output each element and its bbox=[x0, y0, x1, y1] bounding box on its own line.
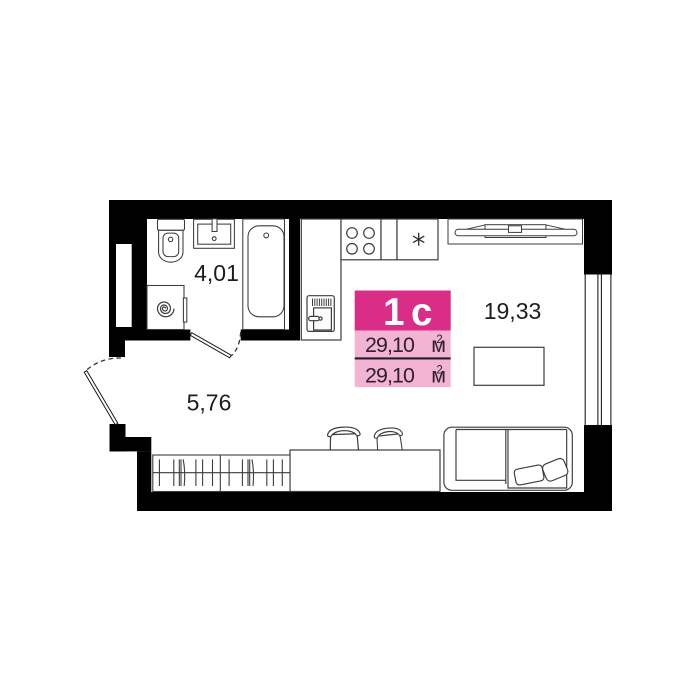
svg-text:2: 2 bbox=[436, 334, 442, 346]
svg-text:29,10: 29,10 bbox=[365, 333, 415, 357]
svg-text:2: 2 bbox=[436, 365, 442, 377]
svg-text:4,01: 4,01 bbox=[194, 260, 239, 286]
svg-text:1с: 1с bbox=[383, 291, 439, 334]
svg-text:19,33: 19,33 bbox=[484, 298, 542, 324]
svg-text:5,76: 5,76 bbox=[187, 390, 232, 416]
svg-text:29,10: 29,10 bbox=[365, 363, 415, 387]
